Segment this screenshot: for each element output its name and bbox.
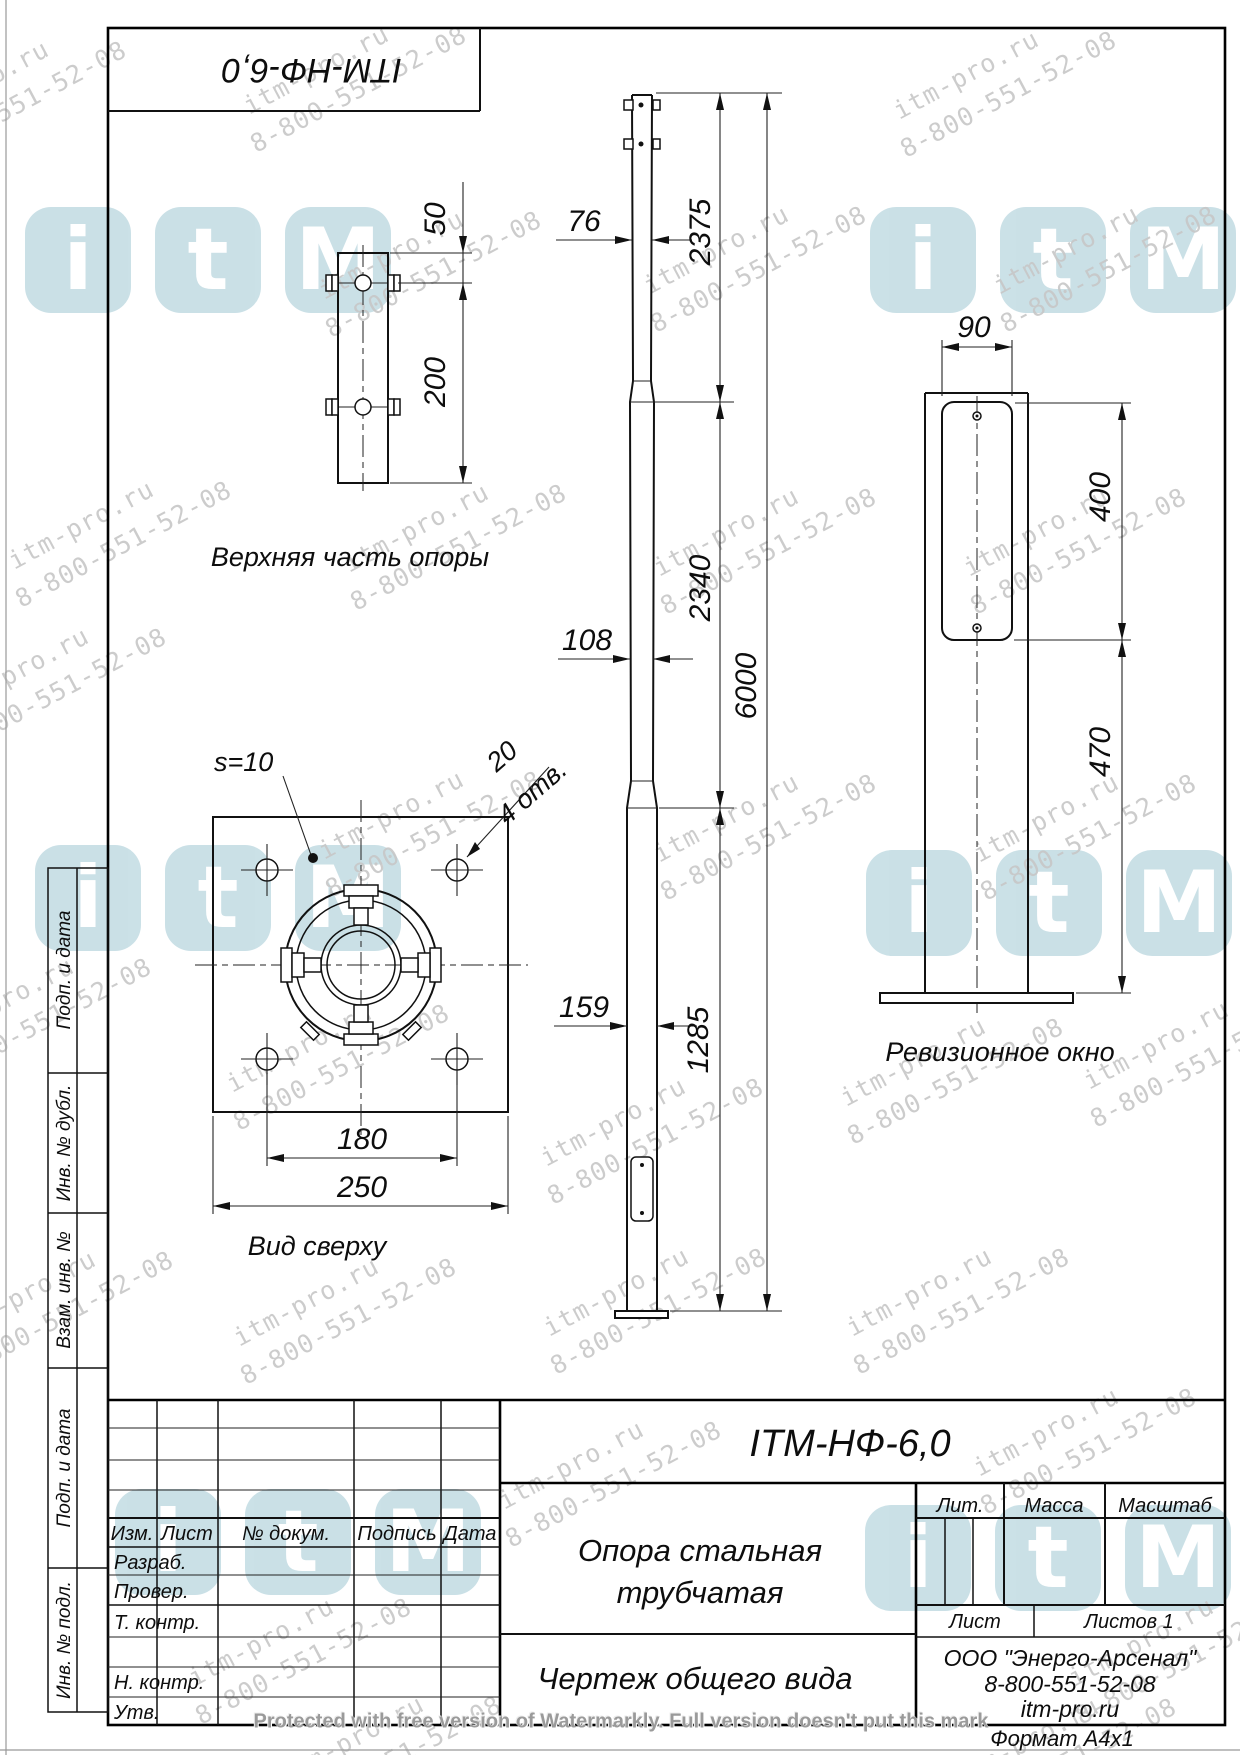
dim-250: 250 [336,1171,387,1204]
drawing-sheet: itMitMitMitMitMitM itm-pro.ru8-800-551-5… [0,0,1240,1755]
sidebar-cell-label: Инв. № подл. [54,1581,75,1699]
col-list: Лист [159,1523,213,1545]
watermarkly-notice: Protected with free version of Watermark… [254,1711,989,1734]
dim-2340: 2340 [684,554,717,622]
dim-470: 470 [1084,727,1117,777]
note-thickness: s=10 [214,747,273,777]
sidebar-cell-label: Подп. и дата [54,1409,75,1528]
company-phone: 8-800-551-52-08 [984,1671,1156,1697]
drawing-canvas: ITM-НФ-6,0 Подп. и дата Инв. № дубл. Вза… [0,0,1240,1755]
clamp-bolt [281,948,321,982]
row-prover: Провер. [114,1581,189,1603]
company-site: itm-pro.ru [1021,1696,1120,1722]
format-label: Формат А4х1 [990,1726,1134,1751]
dim-108: 108 [562,624,612,657]
dim-200: 200 [419,357,452,408]
clamp-bolt [344,1005,378,1045]
dim-1285: 1285 [682,1006,715,1073]
sheets-label: Листов 1 [1082,1611,1174,1633]
doc-name-line2: трубчатая [617,1575,784,1610]
scale-header: Масштаб [1118,1495,1212,1517]
note-hole-dia: 20 [480,735,523,778]
sidebar-cell-label: Подп. и дата [54,911,75,1030]
sidebar-cell-label: Инв. № дубл. [54,1085,75,1202]
view-plan-label: Вид сверху [248,1231,388,1261]
title-block: Изм. Лист № докум. Подпись Дата Разраб. … [108,1400,1225,1751]
designation: ITM-НФ-6,0 [749,1423,950,1465]
dim-159: 159 [559,991,609,1024]
dim-400: 400 [1084,472,1117,522]
dim-6000: 6000 [730,652,763,719]
mass-header: Масса [1024,1495,1083,1517]
sidebar-column: Подп. и дата Инв. № дубл. Взам. инв. № П… [48,868,108,1712]
clamp-bolt [344,885,378,925]
sidebar-cell-label: Взам. инв. № [54,1231,75,1349]
dim-50: 50 [419,202,452,236]
corner-stamp: ITM-НФ-6,0 [108,28,480,111]
dim-180: 180 [337,1123,387,1156]
col-izm: Изм. [111,1523,154,1545]
view-window-label: Ревизионное окно [885,1037,1114,1067]
col-doc: № докум. [242,1523,330,1545]
view-upper-part-label: Верхняя часть опоры [211,542,489,572]
dim-2375: 2375 [684,198,717,266]
doc-name-line1: Опора стальная [578,1533,822,1568]
row-razrab: Разраб. [114,1552,186,1574]
stamp-code: ITM-НФ-6,0 [222,51,402,89]
dim-90: 90 [957,311,991,344]
col-sign: Подпись [357,1523,436,1545]
company-name: ООО "Энерго-Арсенал" [944,1645,1199,1671]
view-revision-window: 90 400 470 Ревизионное окно [880,311,1131,1067]
doc-type: Чертеж общего вида [538,1661,853,1696]
view-plan: s=10 20 4 отв. 180 250 Вид сверху [195,735,573,1261]
row-tkontr: Т. контр. [114,1612,200,1634]
row-nkontr: Н. контр. [114,1672,204,1694]
row-utv: Утв. [113,1702,159,1724]
col-date: Дата [442,1523,497,1545]
lit-header: Лит. [935,1495,984,1517]
sheet-label: Лист [947,1611,1001,1633]
page-edges [0,0,1240,1755]
view-general: 76 108 159 2375 2340 1285 6000 [554,93,782,1318]
clamp-bolt [401,948,441,982]
view-upper-part: 50 200 Верхняя часть опоры [211,182,489,572]
dim-76: 76 [567,205,601,238]
